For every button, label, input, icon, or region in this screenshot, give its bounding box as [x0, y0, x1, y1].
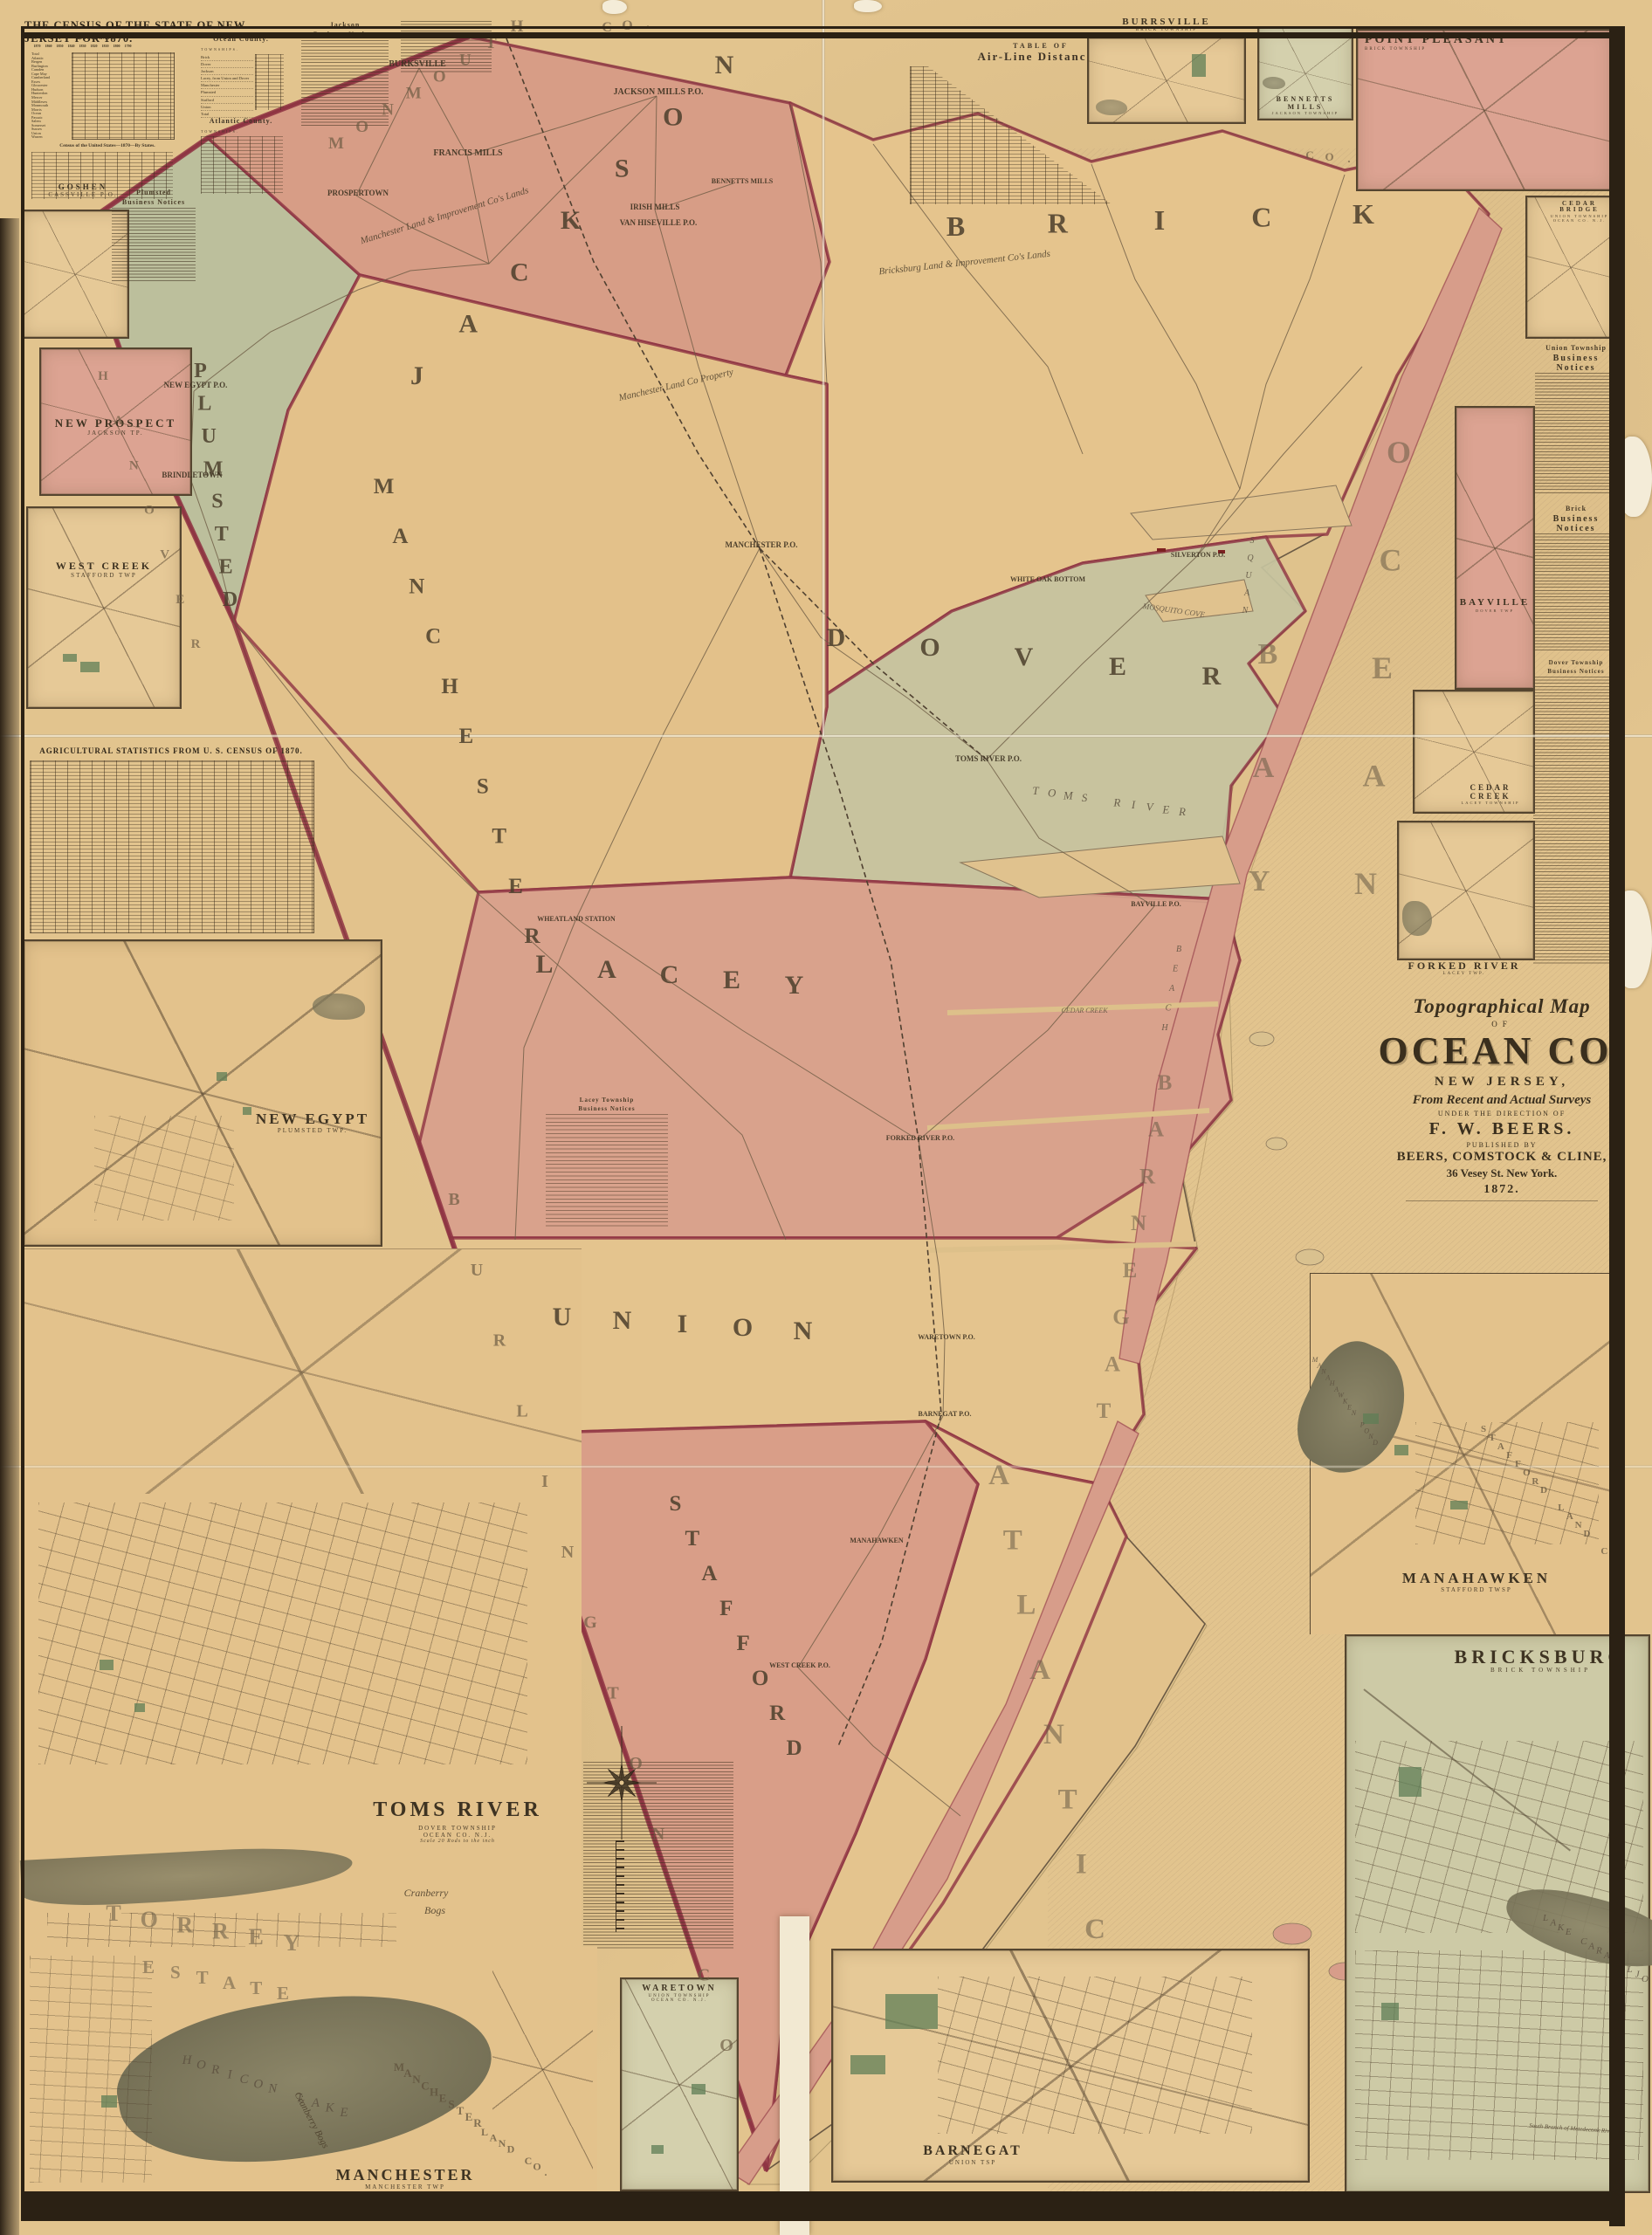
agri-title: AGRICULTURAL STATISTICS FROM U. S. CENSU… — [26, 746, 316, 755]
list-item: 1800 — [111, 44, 122, 51]
list-item: 1830 — [77, 44, 88, 51]
cartouche-title: OCEAN CO. — [1358, 1028, 1646, 1073]
bricksburg-inset: BRICKSBURG BRICK TOWNSHIP — [1345, 1634, 1650, 2193]
cartouche-line6: UNDER THE DIRECTION OF — [1358, 1110, 1646, 1117]
forked-river-panel: FORKED RIVER LACEY TWP. — [1397, 821, 1532, 988]
cartouche-line4: NEW JERSEY, — [1358, 1075, 1646, 1090]
census-panel: THE CENSUS OF THE STATE OF NEW JERSEY FO… — [24, 19, 286, 204]
manahawken-inset: MANAHAWKEN STAFFORD TWSP — [1310, 1273, 1617, 1634]
bennetts-mills-inset: BENNETTS MILLS JACKSON TOWNSHIP — [1257, 26, 1353, 120]
list-item: Warren — [31, 135, 70, 140]
forked-river-title: FORKED RIVER LACEY TWP. — [1397, 960, 1532, 976]
cartouche-line7: F. W. BEERS. — [1358, 1119, 1646, 1139]
list-item: Lacey, from Union and Dover — [201, 75, 253, 82]
scale-bar — [616, 1840, 624, 1932]
burrsville-inset — [1087, 37, 1246, 124]
frame-top — [24, 26, 1624, 29]
toms-river-title: TOMS RIVER DOVER TOWNSHIP OCEAN CO. N.J.… — [361, 1799, 554, 1844]
list-item: 1820 — [88, 44, 100, 51]
bennetts-mills-title: BENNETTS MILLS JACKSON TOWNSHIP — [1259, 96, 1352, 115]
dover-township-business-notices: Dover Township Business Notices — [1533, 659, 1619, 980]
union-township-business-notices: Union Township Business Notices — [1535, 344, 1617, 499]
cedar-bridge-inset: CEDAR BRIDGE UNION TOWNSHIP OCEAN CO. N.… — [1525, 196, 1616, 339]
new-egypt-title: NEW EGYPT PLUMSTED TWP. — [247, 1111, 378, 1134]
fold-crease-horizontal-2 — [0, 1465, 1652, 1468]
manahawken-title: MANAHAWKEN STAFFORD TWSP — [1380, 1571, 1573, 1593]
list-item: 1810 — [100, 44, 111, 51]
forked-river-inset — [1397, 821, 1535, 960]
waretown-inset: WARETOWN UNION TOWNSHIP OCEAN CO. N.J. — [620, 1977, 739, 2191]
frame-left — [21, 26, 24, 2221]
fold-crease-vertical-1 — [822, 0, 825, 736]
map-sheet: THE CENSUS OF THE STATE OF NEW JERSEY FO… — [0, 0, 1652, 2235]
brick-business-notices: Brick Business Notices — [1533, 505, 1619, 655]
cartouche-line1: Topographical Map — [1358, 995, 1646, 1018]
census-years-header: 187018601850184018301820181018001790 — [31, 44, 171, 51]
list-item: Jackson — [201, 68, 253, 75]
barnegat-inset: BARNEGAT UNION TSP — [831, 1949, 1310, 2183]
rolled-left-edge — [0, 218, 19, 2235]
list-item: 1790 — [122, 44, 134, 51]
frame-top-inner — [24, 32, 1624, 38]
air-line-matrix — [910, 66, 1112, 204]
list-item: Stafford — [201, 97, 253, 104]
bay-island — [1249, 1032, 1274, 1046]
paper-chip-top-1 — [602, 0, 627, 14]
cartouche-line2: OF — [1358, 1020, 1646, 1028]
agricultural-statistics-panel: AGRICULTURAL STATISTICS FROM U. S. CENSU… — [26, 746, 316, 937]
list-item: 1840 — [65, 44, 77, 51]
cartouche-line9: BEERS, COMSTOCK & CLINE, — [1358, 1150, 1646, 1165]
township-lacey — [419, 877, 1240, 1238]
list-item: 1870 — [31, 44, 43, 51]
point-pleasant-inset: POINT PLEASANT BRICK TOWNSHIP — [1356, 29, 1613, 191]
barnegat-title: BARNEGAT UNION TSP — [868, 2144, 1077, 2166]
paper-tear-bottom — [780, 1916, 809, 2235]
new-prospect-inset: NEW PROSPECT JACKSON TP. — [39, 347, 192, 496]
cedar-bridge-title: CEDAR BRIDGE UNION TOWNSHIP OCEAN CO. N.… — [1546, 201, 1613, 223]
cartouche-copyright-line — [1406, 1200, 1598, 1204]
cartouche-line8: PUBLISHED BY — [1358, 1141, 1646, 1149]
horicon-lake — [107, 1968, 504, 2188]
plumsted-business-notices: Plumsted Business Notices — [112, 189, 196, 292]
cartouche-line5: From Recent and Actual Surveys — [1358, 1093, 1646, 1108]
manchester-title: MANCHESTER MANCHESTER TWP — [318, 2167, 492, 2190]
atlantic-county-label: Atlantic County. — [199, 117, 283, 125]
frame-bottom — [21, 2191, 1625, 2221]
list-item: Brick — [201, 54, 253, 61]
bayville-title: BAYVILLE DOVER TWP — [1456, 598, 1533, 613]
cartouche-year: 1872. — [1358, 1183, 1646, 1197]
bay-island — [1266, 1138, 1287, 1150]
us-census-label: Census of the United States—1870—By Stat… — [42, 143, 173, 148]
agri-table — [30, 760, 314, 933]
jackson-business-notices: Jackson Business Notices — [301, 21, 492, 148]
toms-river-directory — [583, 1762, 733, 1949]
census-county-rows: TotalAtlanticBergenBurlingtonCamdenCape … — [31, 52, 70, 140]
air-line-distances-panel: TABLE OF Air-Line Distances. — [906, 37, 1114, 207]
cedar-creek-inset: CEDAR CREEK LACEY TOWNSHIP — [1413, 690, 1535, 814]
cartouche-line10: 36 Vesey St. New York. — [1358, 1166, 1646, 1180]
bay-island — [1296, 1249, 1324, 1265]
settlement-mark — [1218, 550, 1225, 554]
ocean-townships-label: TOWNSHIPS. — [201, 47, 281, 52]
ocean-county-rows: BrickDoverJacksonLacey, from Union and D… — [201, 54, 253, 118]
toms-river-water — [20, 1843, 354, 1909]
list-item: 1850 — [54, 44, 65, 51]
atlantic-townships-label: TOWNSHIPS. — [201, 129, 281, 134]
list-item: 1860 — [43, 44, 54, 51]
ocean-county-numbers — [255, 54, 284, 110]
fold-crease-horizontal-1 — [0, 734, 1652, 738]
list-item: Manchester — [201, 82, 253, 89]
burrsville-title: BURRSVILLE BRICK TOWNSHIP — [1087, 17, 1246, 32]
census-aggregate-table — [72, 52, 175, 140]
atlantic-county-table — [201, 136, 283, 194]
settlement-mark — [1157, 548, 1166, 552]
list-item: Plumsted — [201, 89, 253, 96]
list-item: Union — [201, 104, 253, 111]
list-item: Dover — [201, 61, 253, 68]
paper-chip-top-2 — [854, 0, 882, 12]
new-egypt-inset: NEW EGYPT PLUMSTED TWP. — [23, 939, 382, 1247]
title-cartouche: Topographical Map OF OCEAN CO. NEW JERSE… — [1358, 995, 1646, 1257]
frame-right — [1609, 26, 1625, 2226]
cedar-creek-title: CEDAR CREEK LACEY TOWNSHIP — [1451, 784, 1530, 805]
bayville-inset: BAYVILLE DOVER TWP — [1455, 406, 1535, 690]
bay-island — [1273, 1923, 1311, 1944]
manchester-inset: MANCHESTER MANCHESTER TWP — [21, 1947, 597, 2193]
west-creek-inset: WEST CREEK STAFFORD TWP — [26, 506, 182, 709]
lacey-business-notices: Lacey Township Business Notices — [546, 1097, 668, 1243]
toms-river-inset: TOMS RIVER DOVER TOWNSHIP OCEAN CO. N.J.… — [21, 1248, 582, 1947]
